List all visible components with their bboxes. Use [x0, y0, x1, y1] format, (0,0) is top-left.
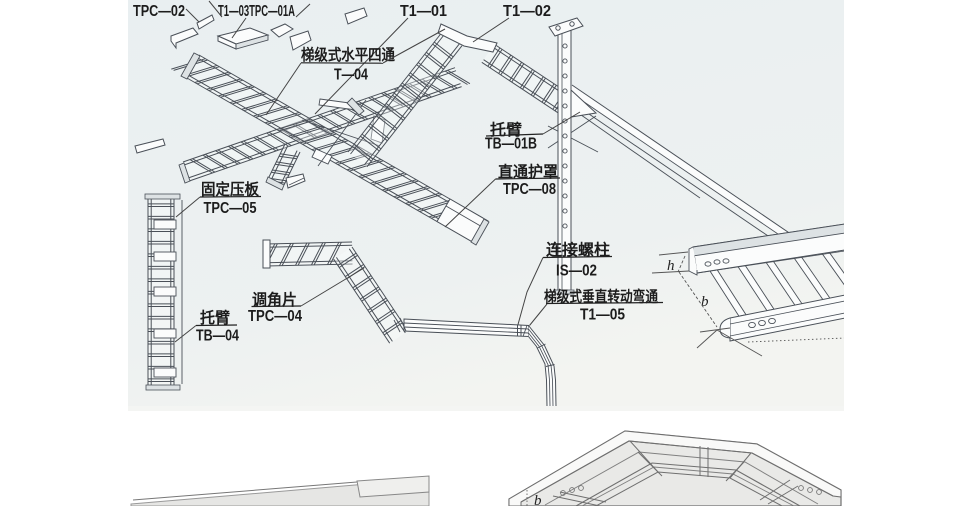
svg-text:b: b — [534, 493, 542, 506]
svg-text:T—04: T—04 — [334, 67, 368, 84]
svg-text:T1—03TPC—01A: T1—03TPC—01A — [218, 3, 295, 20]
svg-text:托臂: 托臂 — [200, 308, 230, 327]
svg-text:T1—01: T1—01 — [400, 3, 447, 20]
svg-text:TB—01B: TB—01B — [485, 136, 537, 153]
svg-text:b: b — [701, 294, 709, 310]
svg-text:TB—04: TB—04 — [196, 328, 239, 345]
svg-text:TPC—08: TPC—08 — [503, 181, 556, 198]
svg-text:T1—05: T1—05 — [580, 307, 625, 324]
svg-text:固定压板: 固定压板 — [201, 180, 259, 199]
svg-text:TPC—05: TPC—05 — [204, 200, 257, 217]
svg-text:梯级式水平四通: 梯级式水平四通 — [301, 45, 395, 64]
svg-text:T1—02: T1—02 — [503, 3, 551, 20]
svg-text:IS—02: IS—02 — [556, 263, 597, 280]
svg-text:TPC—02: TPC—02 — [133, 3, 185, 20]
svg-text:TPC—04: TPC—04 — [248, 308, 302, 325]
